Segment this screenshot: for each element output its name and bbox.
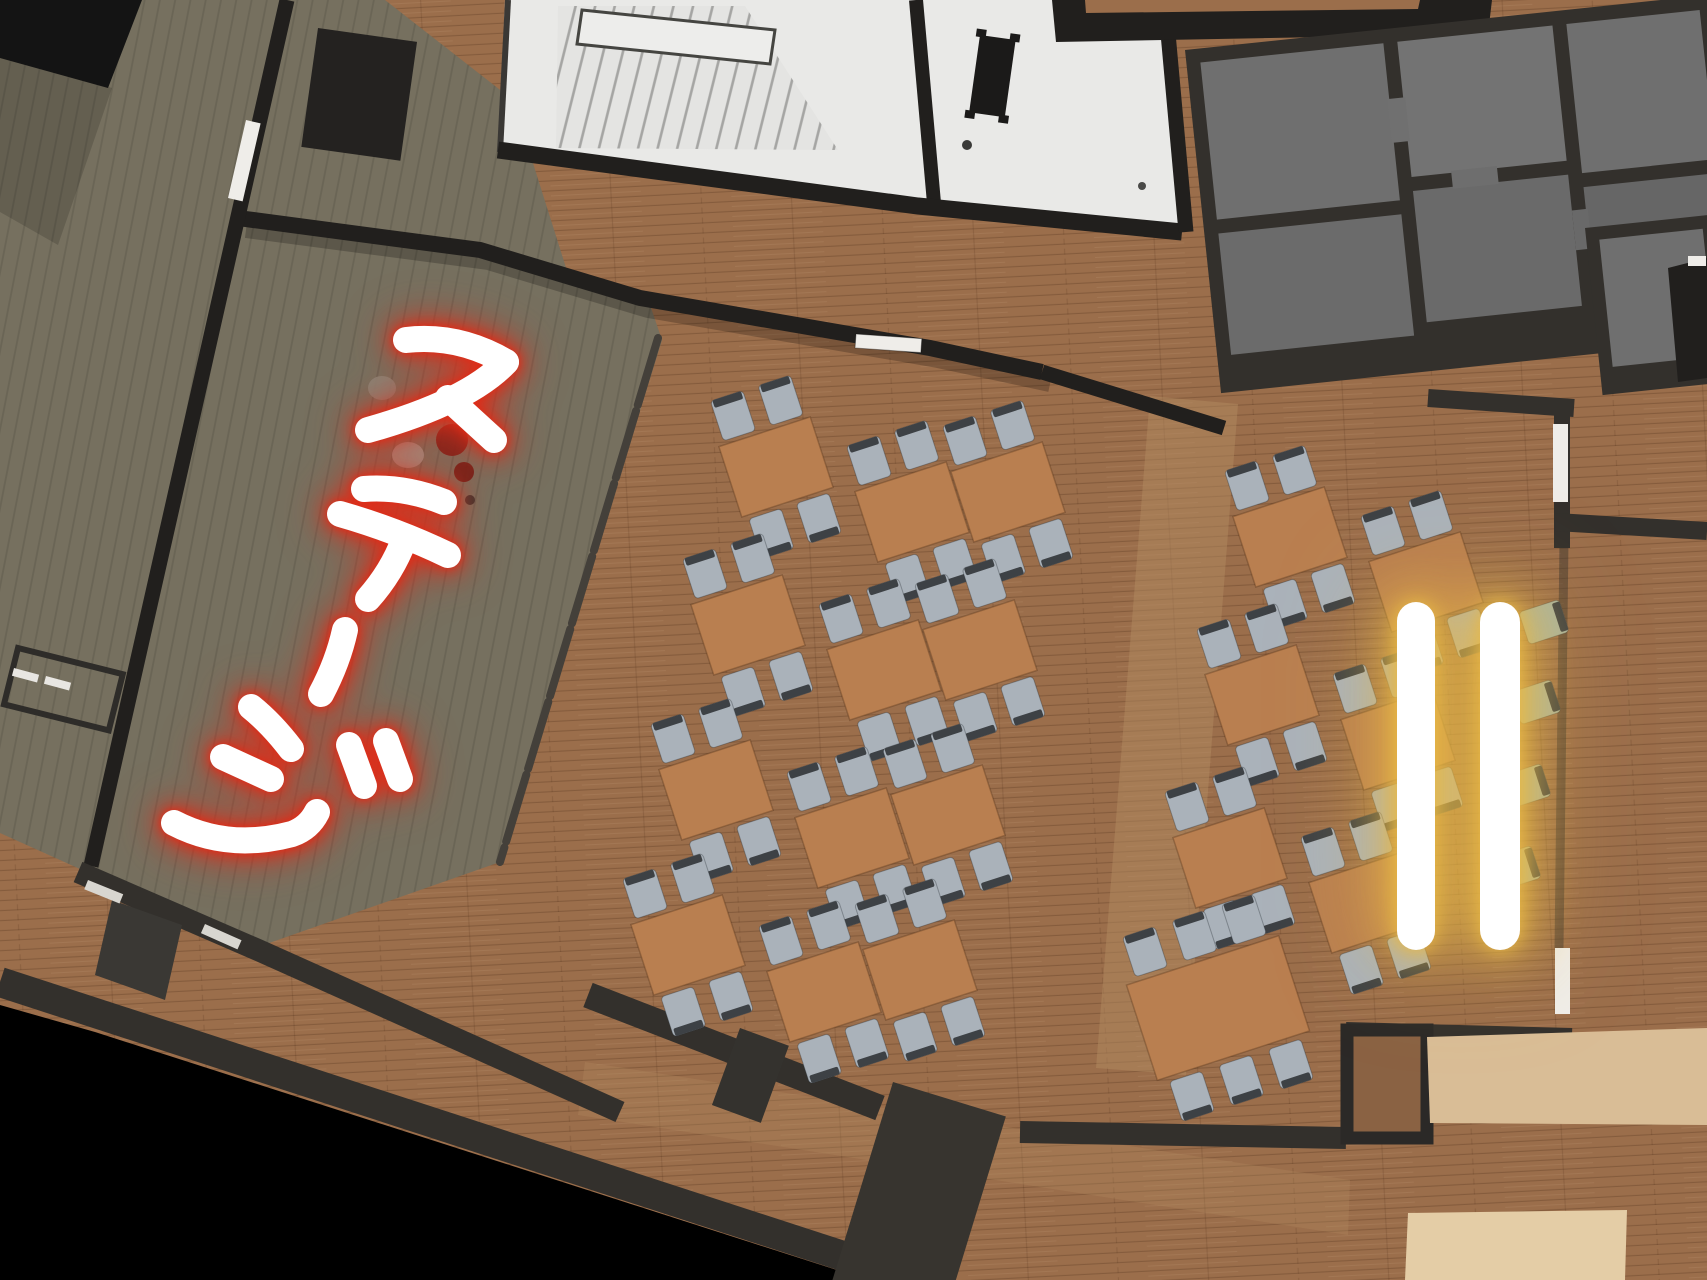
restroom-cell bbox=[1218, 214, 1414, 355]
restroom-cell bbox=[1397, 25, 1566, 177]
small-room bbox=[1347, 1030, 1427, 1138]
beige-area-lower bbox=[1405, 1210, 1627, 1280]
restroom-cell bbox=[1200, 43, 1400, 219]
right-edge-door bbox=[1688, 256, 1706, 266]
highlight-bar-2 bbox=[1480, 602, 1520, 950]
annotation-stroke-dakuten bbox=[349, 745, 364, 786]
right-door-lower bbox=[1555, 948, 1570, 1014]
highlight-bar-1 bbox=[1397, 602, 1435, 950]
stage-top-block bbox=[301, 28, 417, 161]
restroom-cell bbox=[1566, 10, 1707, 173]
annotation-stroke-dakuten bbox=[386, 741, 400, 779]
beige-area-upper bbox=[1427, 1028, 1707, 1125]
floor-dot bbox=[1138, 182, 1146, 190]
floor-dot bbox=[962, 140, 972, 150]
bottom-wall-right bbox=[1020, 1132, 1346, 1138]
right-door-upper bbox=[1553, 424, 1568, 502]
restroom-cell bbox=[1413, 175, 1582, 323]
floorplan-svg bbox=[0, 0, 1707, 1280]
annotation-stroke-te bbox=[364, 489, 444, 502]
right-wall-c bbox=[1556, 522, 1707, 531]
venue-floorplan: ステージ bbox=[0, 0, 1707, 1280]
right-wall-faint bbox=[1559, 540, 1564, 948]
right-wall-a bbox=[1428, 398, 1574, 408]
